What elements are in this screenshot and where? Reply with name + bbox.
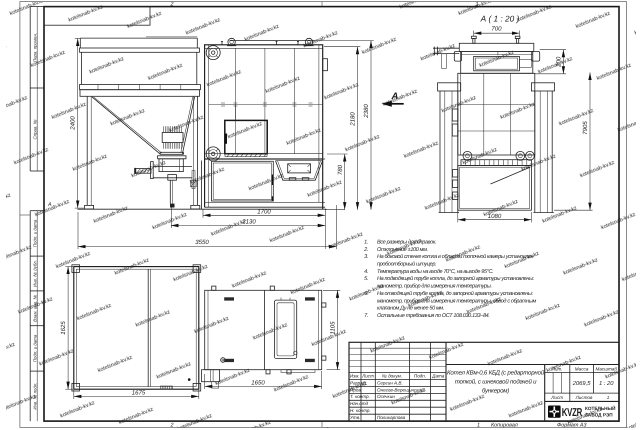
svg-text:На боковой стенке котла в обла: На боковой стенке котла в области топочн… bbox=[377, 253, 534, 260]
svg-text:Остальные требования по ОСТ 10: Остальные требования по ОСТ 108.030.133–… bbox=[377, 312, 490, 319]
svg-text:На подводящей трубе котла, до: На подводящей трубе котла, до запорной а… bbox=[377, 275, 535, 282]
svg-text:манометр, прибор для измерения: манометр, прибор для измерения температу… bbox=[377, 297, 536, 304]
svg-text:Подп. и дата: Подп. и дата bbox=[33, 219, 38, 247]
svg-text:бункером): бункером) bbox=[482, 388, 509, 395]
svg-text:Масштаб: Масштаб bbox=[595, 366, 617, 371]
svg-text:1: 1 bbox=[607, 395, 610, 400]
svg-text:клапаном Ду не менее 50 мм.: клапаном Ду не менее 50 мм. bbox=[377, 306, 444, 312]
svg-text:1700: 1700 bbox=[257, 208, 271, 215]
svg-text:Справ. №: Справ. № bbox=[33, 119, 38, 139]
svg-text:манометр, прибор для измерения: манометр, прибор для измерения температу… bbox=[377, 283, 492, 290]
svg-text:2.: 2. bbox=[363, 247, 368, 253]
svg-text:топкой, с шнековой подачей и: топкой, с шнековой подачей и bbox=[455, 379, 537, 386]
svg-text:Инв. № дубл.: Инв. № дубл. bbox=[33, 260, 38, 287]
svg-text:780: 780 bbox=[337, 164, 344, 175]
svg-text:Лист: Лист bbox=[550, 395, 563, 400]
svg-text:Масса: Масса bbox=[575, 366, 589, 371]
svg-text:Все размеры для справок.: Все размеры для справок. bbox=[377, 240, 436, 246]
svg-text:1: 1 bbox=[476, 2, 479, 8]
svg-text:Подп. и дата: Подп. и дата bbox=[33, 334, 38, 362]
svg-text:1105: 1105 bbox=[330, 321, 337, 335]
svg-text:4.: 4. bbox=[364, 269, 368, 275]
svg-text:Температура воды на входе 70°С: Температура воды на входе 70°С, на выход… bbox=[377, 269, 493, 275]
svg-text:700: 700 bbox=[491, 26, 502, 33]
svg-text:Копировал: Копировал bbox=[491, 422, 518, 428]
svg-text:А ( 1 : 20 ): А ( 1 : 20 ) bbox=[480, 14, 520, 24]
svg-text:200: 200 bbox=[555, 56, 562, 68]
svg-text:1625: 1625 bbox=[60, 321, 67, 335]
svg-text:Инв. № подл.: Инв. № подл. bbox=[33, 382, 38, 409]
svg-text:2400: 2400 bbox=[70, 116, 77, 131]
svg-text:2: 2 bbox=[170, 2, 174, 8]
svg-text:1: 1 bbox=[477, 422, 480, 428]
svg-text:7905: 7905 bbox=[582, 121, 589, 135]
svg-text:Пров.: Пров. bbox=[350, 387, 362, 392]
svg-text:Поликарпова: Поликарпова bbox=[377, 415, 406, 420]
svg-text:ЗАВОД РЭП: ЗАВОД РЭП bbox=[585, 412, 613, 417]
svg-text:3.: 3. bbox=[364, 254, 368, 260]
svg-text:1650: 1650 bbox=[251, 380, 265, 387]
svg-text:Отклонение ±100 мм.: Отклонение ±100 мм. bbox=[377, 247, 428, 253]
svg-text:Дата: Дата bbox=[431, 373, 445, 378]
svg-text:пробоотборный штуцер.: пробоотборный штуцер. bbox=[377, 261, 436, 268]
svg-text:2: 2 bbox=[170, 422, 174, 428]
svg-text:5.: 5. bbox=[364, 276, 368, 282]
svg-text:Подп.: Подп. bbox=[414, 373, 426, 378]
svg-text:Осечкин: Осечкин bbox=[377, 394, 395, 399]
svg-text:3550: 3550 bbox=[195, 239, 209, 246]
svg-text:Листов: Листов bbox=[575, 395, 593, 400]
svg-text:Изм.: Изм. bbox=[350, 373, 360, 378]
svg-text:№ докум.: № докум. bbox=[382, 373, 402, 378]
svg-text:Т. контр.: Т. контр. bbox=[350, 394, 370, 399]
svg-text:А: А bbox=[391, 91, 399, 102]
svg-text:1 : 20: 1 : 20 bbox=[599, 380, 614, 387]
svg-text:Онегов-Верещинский: Онегов-Верещинский bbox=[377, 387, 424, 392]
svg-text:На отводящей трубе котла, до з: На отводящей трубе котла, до запорной ар… bbox=[377, 290, 534, 297]
svg-text:2180: 2180 bbox=[350, 112, 357, 127]
svg-text:Лист: Лист bbox=[361, 373, 374, 378]
svg-text:KVZR: KVZR bbox=[562, 407, 583, 419]
svg-text:2069,5: 2069,5 bbox=[572, 380, 592, 387]
svg-text:Котел КВм-0,6 КБД (с редарторн: Котел КВм-0,6 КБД (с редарторной bbox=[447, 370, 545, 377]
svg-text:Нач.отд: Нач.отд bbox=[350, 401, 369, 406]
svg-text:6.: 6. bbox=[364, 291, 368, 297]
svg-text:7.: 7. bbox=[364, 313, 368, 319]
svg-text:Взам. инв. №: Взам. инв. № bbox=[33, 294, 38, 321]
svg-text:Разраб.: Разраб. bbox=[350, 380, 367, 385]
svg-text:А: А bbox=[47, 202, 52, 208]
svg-text:Утв.: Утв. bbox=[350, 415, 360, 420]
svg-text:1.: 1. bbox=[364, 240, 368, 246]
svg-text:2130: 2130 bbox=[241, 219, 256, 226]
svg-text:КОТЕЛЬНЫЙ: КОТЕЛЬНЫЙ bbox=[585, 405, 616, 411]
svg-text:Лит.: Лит. bbox=[551, 366, 563, 371]
svg-text:2380: 2380 bbox=[363, 104, 370, 119]
svg-text:Формат А3: Формат А3 bbox=[557, 422, 587, 428]
svg-text:Н. контр.: Н. контр. bbox=[350, 408, 371, 413]
svg-text:1675: 1675 bbox=[132, 390, 146, 397]
svg-text:Перв. примен.: Перв. примен. bbox=[33, 33, 38, 62]
svg-text:1080: 1080 bbox=[488, 213, 502, 220]
svg-text:Сергин А.В.: Сергин А.В. bbox=[377, 380, 403, 385]
